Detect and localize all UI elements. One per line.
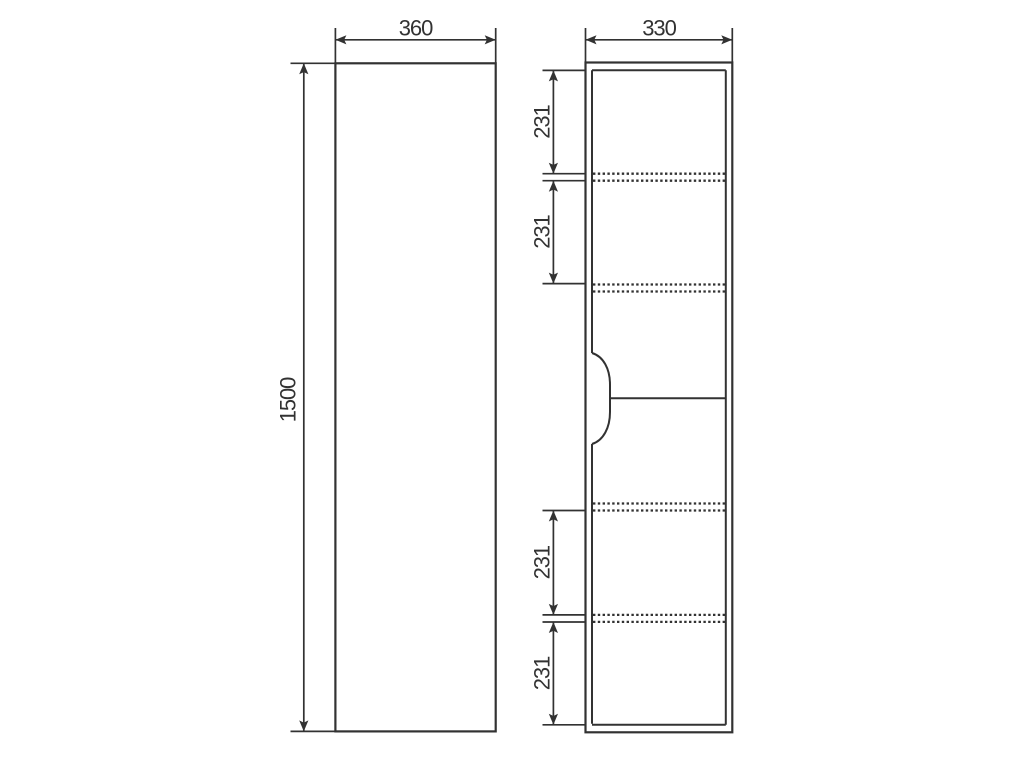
svg-text:1500: 1500 <box>276 377 301 422</box>
svg-text:231: 231 <box>529 215 554 249</box>
svg-text:231: 231 <box>529 545 554 579</box>
svg-text:330: 330 <box>642 15 676 40</box>
svg-text:231: 231 <box>529 656 554 690</box>
svg-text:231: 231 <box>529 105 554 139</box>
svg-text:360: 360 <box>399 15 433 40</box>
